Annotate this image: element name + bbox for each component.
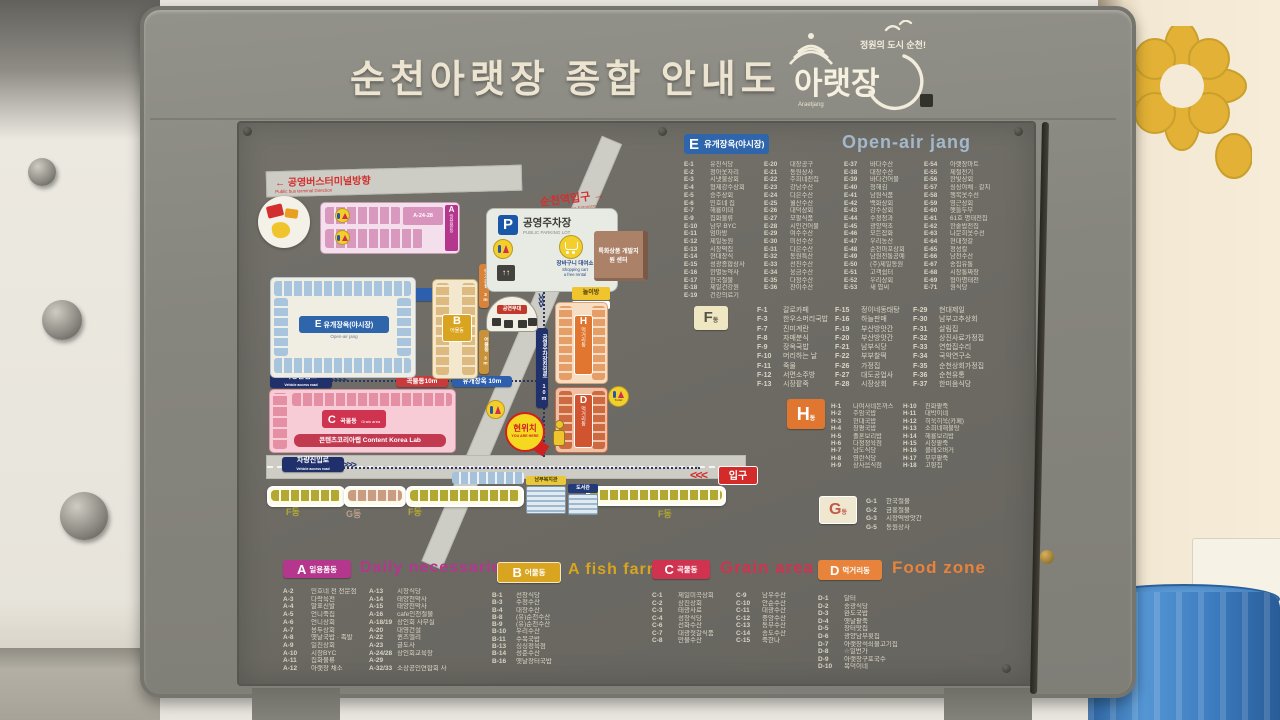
building-D-label: D 먹거리동 — [574, 394, 593, 448]
legend-row: C-15죽한나 — [736, 637, 816, 645]
stall-name: 광양남부횟집 — [844, 633, 880, 641]
legend-row: B-3수정수산 — [492, 599, 612, 606]
stall-name: 장터맛집 — [844, 625, 868, 633]
building-E-label-en: Open-air jang — [299, 334, 389, 339]
stall-name: 엄마방 — [710, 230, 727, 238]
stall-id: E-40 — [844, 184, 870, 192]
legend-row: E-10남부 BYC — [684, 223, 760, 231]
stall-id: F-15 — [835, 306, 861, 315]
stall-name: 소희네해물탕 — [925, 425, 960, 432]
stall-id: D-7 — [818, 641, 844, 649]
stall-name: 머리하는 날 — [783, 352, 817, 361]
stall-name: 한빛상회 — [950, 176, 973, 184]
stall-name: 서면소주방 — [783, 371, 815, 380]
legend-row: C-2상진상회 — [652, 600, 732, 608]
stall-name: 다정정육점 — [853, 440, 882, 447]
legend-row: D-9아랫장구포국수 — [818, 656, 968, 664]
legend-row: F-33연합집수리 — [913, 343, 987, 352]
stall-name: 시장떡방앗간 — [886, 515, 922, 524]
legend-row: E-62한솥밥전집 — [924, 223, 1000, 231]
stall-id: A-11 — [283, 657, 311, 665]
stall-id: E-63 — [924, 230, 950, 238]
entrance-label: 입구 — [718, 466, 758, 485]
stall-name: 안순수산 — [762, 600, 786, 608]
legend-column: C-9남우수산C-10안순수산C-11대광수산C-12중앙수산C-13동부수산C… — [736, 592, 816, 645]
stall-id: E-12 — [684, 238, 710, 246]
stall-name: 시장상회 — [861, 380, 887, 389]
stall-id: B-9 — [492, 621, 516, 628]
legend-row: F-16하늘판매 — [835, 315, 909, 324]
stall-name: 부부팥죽 — [925, 455, 948, 462]
stall-name: 민호네 전 전문점 — [311, 588, 356, 596]
stall-name: 나여사네돈까스 — [853, 403, 894, 410]
legend-row: F-3한우소머리국밥 — [757, 315, 831, 324]
legend-row: A-15태양천막사 — [369, 603, 447, 611]
stall-name: 중앙수산 — [762, 615, 786, 623]
legend-row: E-64현대젓갈 — [924, 238, 1000, 246]
legend-row: H-11대박이네 — [903, 410, 971, 417]
section-D-badge: D먹거리동 — [818, 560, 882, 580]
legend-row: H-18고향집 — [903, 462, 971, 469]
stall-id: F-28 — [835, 380, 861, 389]
stall-id: E-37 — [844, 161, 870, 169]
legend-row: F-20부산방앗간 — [835, 334, 909, 343]
legend-row: H-6다정정육점 — [831, 440, 899, 447]
stall-name: 장옥국밥 — [783, 343, 809, 352]
stall-id: E-4 — [684, 184, 710, 192]
legend-row: F-32상진사료가정집 — [913, 334, 987, 343]
stall-name: 바다건어물 — [870, 176, 899, 184]
stall-name: 태양천막사 — [397, 603, 427, 611]
stall-name: 아랫장구포국수 — [844, 656, 886, 664]
legend-row: F-12서면소주방 — [757, 371, 831, 380]
stall-id: E-25 — [764, 200, 790, 208]
stall-name: 광양약초 — [870, 223, 893, 231]
stall-name: 시장팥죽 — [925, 440, 948, 447]
row-F1 — [267, 486, 345, 507]
legend-column: E-1유진식당E-2정아옷자리E-3시냇물상회E-4형제강수상회E-5승주상회E… — [684, 161, 760, 300]
legend-row: F-26가정집 — [835, 362, 909, 371]
stall-name: 클레오버거 — [925, 447, 954, 454]
legend-row: E-9집화물류 — [684, 215, 760, 223]
legend-row: E-15성광종합상사 — [684, 261, 760, 269]
stall-name: 남도식당 — [853, 447, 876, 454]
section-D-list: D-1달터D-2송광식당D-3완도국밥D-4옛날팥죽D-5장터맛집D-6광양남부… — [818, 595, 968, 671]
stall-name: 시장떡집 — [710, 246, 733, 254]
stall-id: E-5 — [684, 192, 710, 200]
legend-row: E-65정성칼 — [924, 246, 1000, 254]
stall-id: E-56 — [924, 176, 950, 184]
stall-name: 아랫장마트 — [950, 161, 979, 169]
legend-row: H-13소희네해물탕 — [903, 425, 971, 432]
stall-name: 해룡보리밥 — [925, 433, 954, 440]
legend-row: E-53새 엽씨 — [844, 284, 920, 292]
stall-name: 남부고추상회 — [939, 315, 978, 324]
legend-row: E-18제일건강원 — [684, 284, 760, 292]
stall-name: 새 엽씨 — [870, 284, 889, 292]
stall-id: D-4 — [818, 618, 844, 626]
legend-row: C-11대광수산 — [736, 607, 816, 615]
legend-row: H-9상사음식점 — [831, 462, 899, 469]
legend-row: F-10머리하는 날 — [757, 352, 831, 361]
legend-row: E-7해룡이대 — [684, 207, 760, 215]
stall-id: E-27 — [764, 215, 790, 223]
stall-id: A-2 — [283, 588, 311, 596]
legend-row: E-54아랫장마트 — [924, 161, 1000, 169]
legend-row: F-34국악연구소 — [913, 352, 987, 361]
stall-id: E-33 — [764, 261, 790, 269]
legend-row: B-9(유)순천수산 — [492, 621, 612, 628]
stall-name: 동원특산 — [790, 253, 813, 261]
stall-id: A-15 — [369, 603, 397, 611]
stall-name: 대장수산 — [870, 169, 893, 177]
building-A: A-24-28 A 일용품동 — [320, 202, 460, 254]
legend-row: E-56한빛상회 — [924, 176, 1000, 184]
stall-name: 싱싱정육점 — [516, 643, 546, 650]
stall-name: 건강의료기 — [710, 292, 739, 300]
stall-name: 대영건설 — [397, 627, 421, 635]
stall-id: F-9 — [757, 343, 783, 352]
stall-name: 죽한나 — [762, 637, 780, 645]
legend-column: E-37바다수산E-38대장수산E-39바다건어물E-40청해김E-41남원식품… — [844, 161, 920, 292]
legend-row: E-58행복옷수선 — [924, 192, 1000, 200]
stall-name: 한별농약사 — [710, 269, 739, 277]
stall-name: (유)순천수산 — [516, 621, 550, 628]
stall-name: 소상공인연합회 사무실 — [397, 665, 447, 673]
stall-id: H-14 — [903, 433, 925, 440]
legend-row: E-43강수상회 — [844, 207, 920, 215]
stall-id: E-26 — [764, 207, 790, 215]
stall-id: A-3 — [283, 596, 311, 604]
stall-id: D-10 — [818, 663, 844, 671]
legend-row: E-2정아옷자리 — [684, 169, 760, 177]
legend-row: E-21동원상사 — [764, 169, 840, 177]
stall-name: 남우수산 — [762, 592, 786, 600]
stall-id: D-8 — [818, 648, 844, 656]
legend-row: F-13시장팥죽 — [757, 380, 831, 389]
legend-row: F-22부부찰떡 — [835, 352, 909, 361]
stall-id: E-21 — [764, 169, 790, 177]
legend-row: C-8만물수산 — [652, 637, 732, 645]
legend-column: D-1달터D-2송광식당D-3완도국밥D-4옛날팥죽D-5장터맛집D-6광양남부… — [818, 595, 968, 671]
stall-id: E-49 — [844, 253, 870, 261]
stall-name: 가정집 — [861, 362, 880, 371]
stall-id: E-50 — [844, 261, 870, 269]
stall-name: 국악연구소 — [939, 352, 971, 361]
welfare-center: 남부복지관 — [526, 476, 566, 514]
stall-name: 대덕상회 — [790, 207, 813, 215]
stall-name: 옛날국밥 · 족발 — [311, 634, 353, 642]
row-F3 — [586, 486, 726, 506]
stall-id: D-6 — [818, 633, 844, 641]
stall-name: 완도국밥 — [844, 610, 868, 618]
stall-id: F-30 — [913, 315, 939, 324]
stall-id: F-20 — [835, 334, 861, 343]
stall-id: A-29 — [369, 657, 397, 665]
shopping-cart-icon — [559, 235, 583, 259]
legend-row: E-57싱싱야채 · 갈치 — [924, 184, 1000, 192]
stall-id: H-16 — [903, 447, 925, 454]
legend-row: E-46모든잡화 — [844, 230, 920, 238]
legend-row: A-12아랫장 채소 — [283, 665, 361, 673]
stall-id: G-2 — [866, 507, 886, 516]
row-G — [344, 486, 406, 507]
legend-row: E-55제철전기 — [924, 169, 1000, 177]
building-B-label: B 어물동 — [442, 314, 472, 342]
stall-id: E-6 — [684, 200, 710, 208]
stall-id: A-7 — [283, 627, 311, 635]
building-E: E 유개장옥(야시장) Open-air jang — [270, 277, 416, 378]
stage-building: 공연무대 — [486, 296, 538, 338]
stall-id: D-5 — [818, 625, 844, 633]
stall-name: 옛날팥죽 — [844, 618, 868, 626]
stall-name: 상인회교육장 — [397, 650, 433, 658]
stall-id: E-20 — [764, 161, 790, 169]
stall-id: E-16 — [684, 269, 710, 277]
stall-id: E-44 — [844, 215, 870, 223]
legend-row: E-36찬이수산 — [764, 284, 840, 292]
specialty-center: 특화상품 개발지원 센터 — [594, 231, 648, 281]
stall-id: E-19 — [684, 292, 710, 300]
stall-name: 남원전통공예 — [870, 253, 905, 261]
stall-name: 옛날장터국밥 — [516, 658, 552, 665]
stall-id: D-2 — [818, 603, 844, 611]
legend-column: E-20대장공구E-21동원상사E-22주희네전집E-23강남수산E-24다은수… — [764, 161, 840, 292]
stall-id: E-2 — [684, 169, 710, 177]
legend-row: C-13동부수산 — [736, 622, 816, 630]
stall-id: E-61 — [924, 215, 950, 223]
legend-row: E-40청해김 — [844, 184, 920, 192]
stall-id: E-9 — [684, 215, 710, 223]
stall-id: E-47 — [844, 238, 870, 246]
stall-id: A-16 — [369, 611, 397, 619]
legend-row: E-14현대장식 — [684, 253, 760, 261]
legend-row: E-60햇들두부 — [924, 207, 1000, 215]
stall-id: H-17 — [903, 455, 925, 462]
stall-name: 수복국밥 — [516, 636, 540, 643]
section-C-badge: C곡물동 — [652, 560, 710, 579]
building-C-label: C 곡물동 Grain area — [322, 410, 386, 428]
stall-id: E-24 — [764, 192, 790, 200]
toilet-icon — [486, 400, 505, 419]
legend-row: C-12중앙수산 — [736, 615, 816, 623]
row-blue-stalls — [452, 472, 524, 484]
stall-name: 모든잡화 — [870, 230, 893, 238]
legend-row: C-3태광사료 — [652, 607, 732, 615]
stall-id: A-6 — [283, 619, 311, 627]
legend-row: E-34웅금수산 — [764, 269, 840, 277]
stall-id: F-36 — [913, 371, 939, 380]
stall-name: 정이네동태탕 — [861, 306, 900, 315]
legend-row: E-68시장통짜장 — [924, 269, 1000, 277]
legend-row: C-1제일미곡상회 — [652, 592, 732, 600]
stall-id: H-15 — [903, 440, 925, 447]
stall-name: 한솥밥전집 — [950, 223, 979, 231]
legend-row: E-28시인건어물 — [764, 223, 840, 231]
section-E-header-en: Open-air jang — [842, 132, 971, 153]
stall-name: 제일농원 — [710, 238, 733, 246]
legend-row: E-39바다건어물 — [844, 176, 920, 184]
stall-id: C-15 — [736, 637, 762, 645]
stall-name: 시인건어물 — [790, 223, 819, 231]
stall-name: 동원상사 — [886, 524, 910, 533]
stall-name: 다은수산 — [790, 246, 813, 254]
legend-row: F-30남부고추상회 — [913, 315, 987, 324]
stall-name: 민호네 집 — [710, 200, 735, 208]
legend-row: D-10복덕이네 — [818, 663, 968, 671]
legend-row: E-69형아명태전 — [924, 277, 1000, 285]
legend-column: A-2민호네 전 전문점A-3다락육전A-4말표신발A-5언니죽집A-6언니상회… — [283, 588, 361, 673]
bus-terminal-direction-bar: ← 공영버스터미널방향 Public bus terminal Directio… — [266, 165, 523, 198]
stall-name: 용두상회 — [311, 627, 335, 635]
stall-id: E-35 — [764, 277, 790, 285]
stall-id: E-69 — [924, 277, 950, 285]
legend-row: A-22퀸즈엘리 — [369, 634, 447, 642]
person-icon — [552, 420, 566, 446]
stall-name: 고향집 — [925, 462, 942, 469]
legend-row: F-37한미음식당 — [913, 380, 987, 389]
building-A-label: A 일용품동 — [445, 205, 458, 251]
legend-row: G-2금홍철물 — [866, 507, 956, 516]
stall-id: E-22 — [764, 176, 790, 184]
legend-row: E-20대장공구 — [764, 161, 840, 169]
stall-id: B-11 — [492, 636, 516, 643]
stall-name: 형아명태전 — [950, 277, 979, 285]
stall-name: 대장수산 — [516, 607, 540, 614]
stall-name: 해룡이대 — [710, 207, 733, 215]
stall-id: H-13 — [903, 425, 925, 432]
stall-name: 원식당 — [950, 284, 967, 292]
stall-id: G-1 — [866, 498, 886, 507]
stall-name: 현대국밥 — [853, 418, 876, 425]
legend-column: F-15정이네동태탕F-16하늘판매F-19부산방앗간F-20부산방앗간F-21… — [835, 306, 909, 390]
content-korea-lab-banner: 콘텐츠코리아랩 Content Korea Lab — [294, 434, 446, 447]
you-are-here-marker: 현위치 YOU ARE HERE — [505, 412, 549, 456]
legend-row: E-48순천마포상회 — [844, 246, 920, 254]
stall-name: 다락육전 — [311, 596, 335, 604]
legend-row: B-11수복국밥 — [492, 636, 612, 643]
legend-row: E-66남천수산 — [924, 253, 1000, 261]
stall-id: A-5 — [283, 611, 311, 619]
stall-id: A-20 — [369, 627, 397, 635]
legend-column: G-1한국철물G-2금홍철물G-3시장떡방앗간G-5동원상사 — [866, 498, 956, 532]
stall-name: 아랫장 채소 — [311, 665, 343, 673]
stall-name: 대박이네 — [925, 410, 948, 417]
stall-name: 태양천막사 — [397, 596, 427, 604]
left-arrow-icon: ← — [275, 178, 285, 189]
row-F1-label: F동 — [286, 505, 300, 518]
legend-row: E-24다은수산 — [764, 192, 840, 200]
stall-id: A-8 — [283, 634, 311, 642]
stall-name: 제일미곡상회 — [678, 592, 714, 600]
stall-name: 성광종합상사 — [710, 261, 745, 269]
stall-id: A-4 — [283, 603, 311, 611]
legend-row: F-1갈로카페 — [757, 306, 831, 315]
stall-name: 한국철물 — [886, 498, 910, 507]
parking-p-icon: P — [498, 215, 518, 235]
stall-id: F-11 — [757, 362, 783, 371]
stall-id: E-7 — [684, 207, 710, 215]
section-D-header-en: Food zone — [892, 558, 986, 578]
stall-name: 다정수산 — [790, 277, 813, 285]
stall-id: C-8 — [652, 637, 678, 645]
stall-id: B-8 — [492, 614, 516, 621]
stall-id: F-29 — [913, 306, 939, 315]
stall-name: 부산방앗간 — [861, 325, 893, 334]
stall-id: E-64 — [924, 238, 950, 246]
stall-id: E-30 — [764, 238, 790, 246]
stall-id: A-13 — [369, 588, 397, 596]
parking-title: 공영주차장 PUBLIC PARKING LOT — [523, 215, 571, 235]
legend-row: A-8옛날국밥 · 족발 — [283, 634, 361, 642]
legend-row: A-7용두상회 — [283, 627, 361, 635]
stall-id: F-37 — [913, 380, 939, 389]
legend-row: E-63나문희옷수선 — [924, 230, 1000, 238]
stall-id: A-23 — [369, 642, 397, 650]
stall-name: 백화상회 — [870, 200, 893, 208]
stall-id: C-6 — [652, 622, 678, 630]
legend-row: H-2주암국밥 — [831, 410, 899, 417]
legend-row: H-3현대국밥 — [831, 418, 899, 425]
stall-name: 선진수산 — [790, 261, 813, 269]
legend-row: A-14태양천막사 — [369, 596, 447, 604]
stall-name: 현대젓갈 — [950, 238, 973, 246]
stall-name: 상진상회 — [678, 600, 702, 608]
stall-name: ☆일번가 — [844, 648, 868, 656]
stall-name: 동원상사 — [790, 169, 813, 177]
stall-name: 웅금수산 — [790, 269, 813, 277]
stall-id: E-58 — [924, 192, 950, 200]
stage-label: 공연무대 — [497, 305, 527, 314]
stall-id: E-71 — [924, 284, 950, 292]
stall-id: B-13 — [492, 643, 516, 650]
legend-row: E-38대장수산 — [844, 169, 920, 177]
parking-structure-icon: ↑↑ — [497, 265, 515, 281]
legend-row: E-12제일농원 — [684, 238, 760, 246]
stall-name: 청해김 — [870, 184, 887, 192]
legend-row: F-31살림집 — [913, 325, 987, 334]
stall-id: H-7 — [831, 447, 853, 454]
stall-id: E-41 — [844, 192, 870, 200]
stall-name: 우리수산 — [516, 628, 540, 635]
stall-name: 다은수산 — [790, 192, 813, 200]
stall-id: B-10 — [492, 628, 516, 635]
stall-name: 월산수산 — [790, 200, 813, 208]
stall-id: E-48 — [844, 246, 870, 254]
stall-name: 우리상회 — [870, 277, 893, 285]
legend-row: B-10우리수산 — [492, 628, 612, 635]
stall-name: 송도수산 — [762, 630, 786, 638]
stall-id: E-13 — [684, 246, 710, 254]
section-C-list: C-1제일미곡상회C-2상진상회C-3태광사료C-4성장식당C-6선화수산C-7… — [652, 592, 816, 645]
stall-name: 복덕이네 — [844, 663, 868, 671]
stall-name: 순천마포상회 — [870, 246, 905, 254]
toilet-icon — [493, 239, 513, 259]
stall-id: F-33 — [913, 343, 939, 352]
stall-name: 언니상회 — [311, 619, 335, 627]
stall-id: E-31 — [764, 246, 790, 254]
building-E-label: E 유개장옥(야시장) — [299, 316, 389, 333]
legend-row: D-3완도국밥 — [818, 610, 968, 618]
stall-id: E-57 — [924, 184, 950, 192]
stall-id: B-1 — [492, 592, 516, 599]
legend-row: E-16한별농약사 — [684, 269, 760, 277]
library: 도서관 — [568, 484, 598, 514]
legend-row: E-25월산수산 — [764, 200, 840, 208]
stall-name: 선화수산 — [678, 622, 702, 630]
stall-name: 순천유통 — [939, 371, 965, 380]
legend-column: B-1선창식당B-3수정수산B-4대장수산B-8(유)순천수산B-9(유)순천수… — [492, 592, 612, 665]
